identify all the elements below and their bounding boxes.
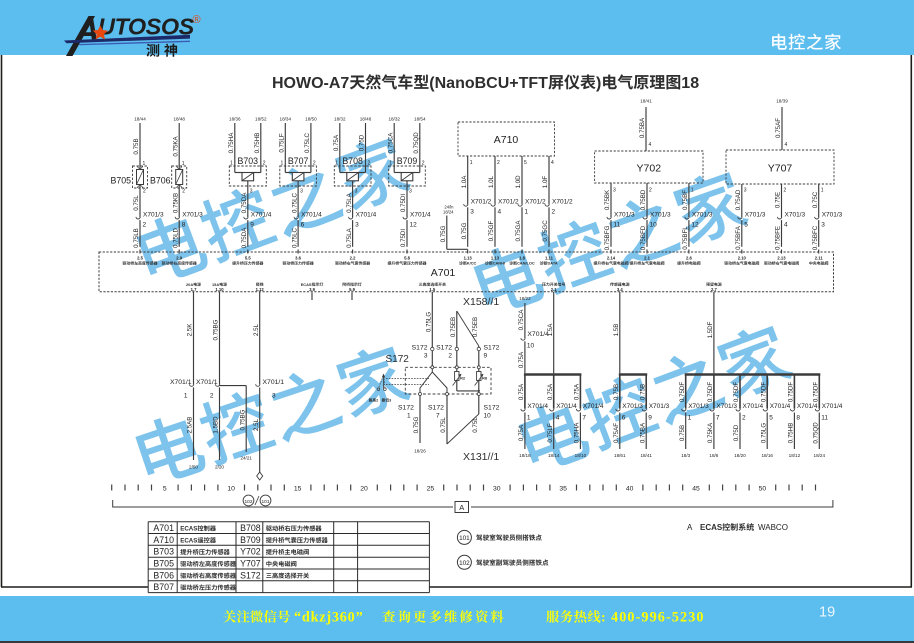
svg-text:1: 1 — [527, 415, 531, 422]
svg-text:A701: A701 — [153, 523, 174, 533]
svg-text:400-996-5230: 400-996-5230 — [611, 610, 705, 626]
svg-text:R8: R8 — [482, 376, 488, 381]
svg-text:2: 2 — [143, 189, 146, 195]
svg-text::: : — [601, 611, 606, 626]
svg-text:4: 4 — [784, 222, 788, 229]
svg-text:18/14: 18/14 — [548, 453, 560, 458]
svg-text:X701/3: X701/3 — [745, 212, 766, 219]
svg-text:5: 5 — [163, 486, 167, 493]
svg-text:0.75A: 0.75A — [518, 424, 525, 441]
svg-text:18/26: 18/26 — [414, 449, 426, 454]
svg-text:0.75BA: 0.75BA — [639, 117, 646, 138]
svg-text:B706: B706 — [150, 176, 171, 186]
svg-text:18/32: 18/32 — [388, 117, 400, 122]
svg-text:1.12: 1.12 — [256, 287, 265, 292]
svg-text:ECAS: ECAS — [180, 537, 197, 544]
svg-text:1.0F: 1.0F — [542, 176, 549, 189]
svg-text:0.75LD: 0.75LD — [172, 227, 179, 247]
svg-text:X701/4: X701/4 — [356, 212, 377, 219]
svg-text:0.75B: 0.75B — [639, 384, 646, 400]
svg-text:®: ® — [193, 14, 201, 26]
svg-text:0.75L: 0.75L — [472, 417, 479, 433]
svg-text:B708: B708 — [240, 523, 261, 533]
svg-text:2: 2 — [313, 161, 316, 167]
svg-text:0.75DF: 0.75DF — [733, 382, 740, 403]
svg-text:0.75HB: 0.75HB — [254, 133, 261, 154]
svg-text:30: 30 — [493, 486, 501, 493]
svg-text:0.75BFG: 0.75BFG — [604, 225, 611, 250]
svg-text:18/39: 18/39 — [776, 99, 788, 104]
svg-text:0.75G: 0.75G — [440, 225, 447, 242]
svg-text:2/50: 2/50 — [189, 465, 198, 470]
svg-text:B705: B705 — [153, 559, 174, 569]
svg-text:18/24: 18/24 — [443, 210, 454, 215]
svg-text:0.75B: 0.75B — [133, 138, 140, 154]
svg-text:2.1: 2.1 — [551, 287, 557, 292]
svg-text:0.75LC: 0.75LC — [291, 227, 298, 247]
svg-text:1: 1 — [230, 161, 233, 167]
svg-text:3: 3 — [409, 189, 412, 195]
svg-text:3.9: 3.9 — [309, 287, 315, 292]
svg-text:5: 5 — [744, 222, 748, 229]
svg-text:7: 7 — [716, 415, 720, 422]
svg-text:X701/3: X701/3 — [822, 212, 843, 219]
svg-text:1: 1 — [389, 161, 392, 167]
svg-text:X701/4: X701/4 — [410, 212, 431, 219]
svg-text:X701/3: X701/3 — [143, 212, 164, 219]
svg-text:0.75QD: 0.75QD — [413, 132, 420, 154]
svg-text:2.5L: 2.5L — [253, 323, 260, 336]
svg-text:3: 3 — [389, 399, 391, 403]
svg-text:1.11: 1.11 — [545, 255, 554, 260]
svg-text:X131//1: X131//1 — [463, 451, 499, 463]
svg-text:Y707: Y707 — [768, 163, 793, 175]
svg-text:0.75GA: 0.75GA — [515, 220, 522, 242]
svg-text:5: 5 — [769, 415, 773, 422]
svg-text:18/41: 18/41 — [640, 453, 652, 458]
svg-text:0.75DF: 0.75DF — [760, 382, 767, 403]
svg-text:1: 1 — [525, 209, 529, 216]
svg-text:WABCO: WABCO — [758, 523, 788, 532]
svg-text:0.75LG: 0.75LG — [426, 312, 433, 332]
svg-text:0.75CA: 0.75CA — [387, 132, 394, 154]
svg-text:1: 1 — [470, 160, 473, 166]
svg-text:(NanoBCU+TFT: (NanoBCU+TFT — [429, 75, 548, 92]
svg-text:X701/3: X701/3 — [688, 403, 709, 410]
svg-text:X701/3: X701/3 — [182, 212, 203, 219]
svg-text:18: 18 — [681, 75, 699, 92]
svg-text:B706: B706 — [153, 570, 174, 580]
svg-text:4: 4 — [649, 142, 652, 148]
svg-text:0.75BG: 0.75BG — [239, 409, 246, 430]
svg-text:0.75AF: 0.75AF — [775, 118, 782, 138]
svg-text:0.75HA: 0.75HA — [574, 422, 581, 444]
svg-text:2/20: 2/20 — [215, 465, 224, 470]
svg-text:A710: A710 — [153, 535, 174, 545]
svg-text:50: 50 — [759, 486, 767, 493]
svg-text:0.75BK: 0.75BK — [604, 189, 611, 210]
svg-text:1: 1 — [281, 161, 284, 167]
svg-text:0.75G: 0.75G — [413, 416, 420, 433]
svg-text:S172: S172 — [398, 405, 414, 412]
svg-text:1.10: 1.10 — [215, 287, 224, 292]
svg-text:S172: S172 — [428, 405, 444, 412]
svg-text:5.9: 5.9 — [349, 287, 355, 292]
svg-text:1: 1 — [182, 161, 185, 167]
svg-text:0.75DI: 0.75DI — [400, 229, 407, 248]
svg-text:0.75A: 0.75A — [333, 134, 340, 151]
svg-text:2.2: 2.2 — [350, 255, 356, 260]
svg-text:B705: B705 — [110, 176, 131, 186]
svg-text:35: 35 — [559, 486, 567, 493]
svg-text:K/CC: K/CC — [467, 261, 477, 266]
svg-text:11: 11 — [614, 222, 621, 229]
svg-text:X701/4: X701/4 — [822, 403, 843, 410]
svg-text:X158//1: X158//1 — [463, 296, 499, 308]
svg-text:40: 40 — [626, 486, 634, 493]
svg-text:A710: A710 — [494, 134, 519, 146]
svg-text:15: 15 — [294, 486, 302, 493]
svg-text:2: 2 — [368, 161, 371, 167]
svg-text:0.75DI: 0.75DI — [400, 194, 407, 213]
svg-text:2: 2 — [210, 393, 214, 400]
svg-text:0.75A: 0.75A — [574, 383, 581, 400]
svg-text:2.7: 2.7 — [711, 287, 717, 292]
svg-text:0.75L: 0.75L — [133, 195, 140, 211]
svg-text:Y702: Y702 — [240, 547, 261, 557]
svg-text:2.5K: 2.5K — [187, 323, 194, 337]
svg-text:102: 102 — [459, 560, 470, 567]
svg-text:18/6: 18/6 — [709, 453, 718, 458]
svg-text:B703: B703 — [153, 547, 174, 557]
svg-text:0.75BFE: 0.75BFE — [775, 226, 782, 250]
svg-text:3: 3 — [424, 353, 428, 360]
svg-text:18/61: 18/61 — [614, 453, 626, 458]
svg-text:A: A — [687, 523, 693, 532]
svg-text:3: 3 — [272, 393, 276, 400]
svg-text:12: 12 — [691, 222, 699, 229]
svg-text:4: 4 — [551, 160, 554, 166]
svg-text:1.0D: 1.0D — [515, 175, 522, 189]
svg-text:25: 25 — [427, 486, 435, 493]
svg-text:1.0A: 1.0A — [461, 175, 468, 189]
svg-text:1: 1 — [335, 161, 338, 167]
svg-text:0.75D: 0.75D — [359, 134, 366, 151]
svg-text:0.75BFC: 0.75BFC — [812, 225, 819, 250]
svg-text:S172: S172 — [436, 345, 452, 352]
svg-text:1: 1 — [821, 188, 824, 194]
svg-text:1.8: 1.8 — [519, 255, 525, 260]
svg-text:2: 2 — [497, 160, 500, 166]
svg-text:0.75GF: 0.75GF — [488, 220, 495, 241]
svg-text:B708: B708 — [342, 156, 363, 166]
svg-text:CAN/LOC: CAN/LOC — [517, 261, 535, 266]
svg-text:6: 6 — [301, 222, 305, 229]
svg-text:0.75BG: 0.75BG — [213, 319, 220, 340]
svg-text:2.5: 2.5 — [137, 255, 143, 260]
svg-text:0.75LF: 0.75LF — [547, 423, 554, 442]
svg-text:A701: A701 — [431, 267, 456, 279]
svg-text:6: 6 — [622, 415, 626, 422]
svg-text:DATA: DATA — [548, 261, 558, 266]
svg-text:18/24: 18/24 — [814, 453, 826, 458]
svg-text:18/50: 18/50 — [305, 117, 317, 122]
svg-text:0.75KA: 0.75KA — [172, 135, 179, 156]
svg-text:B707: B707 — [153, 582, 174, 592]
svg-text:S172: S172 — [484, 405, 500, 412]
svg-text:5.5: 5.5 — [245, 255, 251, 260]
svg-text:X701/4: X701/4 — [527, 403, 548, 410]
svg-text:1.13: 1.13 — [464, 255, 473, 260]
svg-text:“dkzj360”: “dkzj360” — [294, 610, 363, 626]
svg-text:X701/3: X701/3 — [614, 212, 635, 219]
svg-text:0.75EB: 0.75EB — [472, 317, 479, 337]
svg-text:3: 3 — [821, 222, 825, 229]
svg-text:5.8: 5.8 — [404, 255, 410, 260]
svg-text:2.6: 2.6 — [686, 255, 692, 260]
svg-text:HOWO-A7: HOWO-A7 — [272, 75, 349, 92]
svg-text:X701/2: X701/2 — [498, 199, 519, 206]
svg-text:0.75BFA: 0.75BFA — [735, 225, 742, 250]
svg-text:0.75L: 0.75L — [440, 417, 447, 433]
svg-text:2: 2 — [552, 209, 556, 216]
svg-text:2.5AB: 2.5AB — [187, 417, 194, 434]
svg-text:18/32: 18/32 — [334, 117, 346, 122]
svg-text:2: 2 — [263, 161, 266, 167]
svg-text:9: 9 — [484, 353, 488, 360]
svg-text:CANHI: CANHI — [493, 261, 505, 266]
svg-text:8: 8 — [182, 222, 186, 229]
svg-text:0.75DA: 0.75DA — [241, 227, 248, 249]
svg-text:0.75BFD: 0.75BFD — [640, 225, 647, 250]
svg-text:2.5L: 2.5L — [253, 418, 260, 431]
svg-text:1.5A: 1.5A — [547, 323, 554, 337]
svg-text:18/22: 18/22 — [519, 296, 531, 301]
svg-text:X701/4: X701/4 — [583, 403, 604, 410]
svg-text:0.75HA: 0.75HA — [228, 132, 235, 154]
svg-text:2: 2 — [742, 415, 746, 422]
svg-text:45: 45 — [692, 486, 700, 493]
svg-text:0.75B: 0.75B — [679, 425, 686, 441]
svg-text:1: 1 — [407, 413, 411, 420]
svg-text:0.75GC: 0.75GC — [542, 220, 549, 242]
svg-text:11: 11 — [821, 415, 828, 422]
svg-text:2: 2 — [784, 188, 787, 194]
svg-text:X701/4: X701/4 — [301, 212, 322, 219]
svg-text:2: 2 — [376, 399, 378, 403]
svg-text:1: 1 — [691, 188, 694, 194]
svg-text:18/41: 18/41 — [640, 99, 652, 104]
svg-text:10: 10 — [650, 222, 658, 229]
svg-text:18/54: 18/54 — [414, 117, 426, 122]
svg-text:3: 3 — [613, 188, 616, 194]
svg-text:1.5B: 1.5B — [613, 324, 620, 337]
svg-text:0.75HB: 0.75HB — [788, 423, 795, 444]
svg-text:20: 20 — [360, 486, 368, 493]
svg-text:0.75LA: 0.75LA — [346, 192, 353, 212]
svg-text:3: 3 — [744, 188, 747, 194]
svg-text:18/12: 18/12 — [789, 453, 801, 458]
svg-text:0.75AF: 0.75AF — [613, 423, 620, 443]
svg-text:18/46: 18/46 — [360, 117, 372, 122]
svg-text:102: 102 — [244, 499, 252, 505]
svg-text:0.75DF: 0.75DF — [679, 382, 686, 403]
svg-text:B703: B703 — [238, 156, 259, 166]
svg-text:1.5DF: 1.5DF — [707, 321, 714, 338]
svg-text:0.75LG: 0.75LG — [760, 423, 767, 443]
svg-text:X701/3: X701/3 — [692, 212, 713, 219]
svg-text:101: 101 — [261, 499, 269, 505]
svg-text:0.75QD: 0.75QD — [813, 422, 820, 444]
svg-text:0.75LC: 0.75LC — [304, 132, 311, 152]
svg-text:4: 4 — [785, 142, 788, 148]
svg-text:B707: B707 — [288, 156, 309, 166]
svg-text:0.75B: 0.75B — [613, 384, 620, 400]
svg-text:0.75KA: 0.75KA — [707, 422, 714, 443]
svg-text:0.75CA: 0.75CA — [518, 309, 525, 331]
svg-text:1.7: 1.7 — [191, 287, 197, 292]
svg-text:2.14: 2.14 — [607, 255, 616, 260]
svg-text:0.75E: 0.75E — [775, 192, 782, 208]
svg-text:9: 9 — [648, 415, 652, 422]
svg-text:5: 5 — [524, 160, 527, 166]
svg-text:3: 3 — [355, 189, 358, 195]
svg-text:0.75G: 0.75G — [461, 222, 468, 239]
svg-text:18/36: 18/36 — [229, 117, 241, 122]
svg-text:18/48: 18/48 — [173, 117, 185, 122]
svg-text:3: 3 — [355, 222, 359, 229]
svg-text:X701/3: X701/3 — [650, 212, 671, 219]
svg-text:ECAS: ECAS — [180, 526, 197, 533]
svg-text:10: 10 — [484, 413, 492, 420]
svg-text:3: 3 — [250, 189, 253, 195]
svg-text:S172: S172 — [484, 345, 500, 352]
svg-text:X701/1: X701/1 — [263, 379, 285, 386]
svg-text:X701/3: X701/3 — [716, 403, 737, 410]
svg-text:0.75BA: 0.75BA — [639, 422, 646, 443]
svg-text:X701/4: X701/4 — [556, 403, 577, 410]
svg-text:1: 1 — [688, 415, 692, 422]
svg-text:S172: S172 — [386, 354, 410, 365]
svg-text:2.10: 2.10 — [738, 255, 747, 260]
svg-text:0.75C: 0.75C — [812, 191, 819, 208]
svg-text:2.13: 2.13 — [777, 255, 786, 260]
svg-text:3: 3 — [300, 189, 303, 195]
svg-text:2: 2 — [422, 161, 425, 167]
svg-text:2: 2 — [182, 189, 185, 195]
svg-text:12: 12 — [410, 222, 418, 229]
svg-text:0.75LB: 0.75LB — [133, 228, 140, 248]
svg-text:3.6: 3.6 — [295, 255, 301, 260]
svg-text:0.75AD: 0.75AD — [735, 189, 742, 210]
svg-text:2: 2 — [143, 222, 147, 229]
svg-text:ECAS: ECAS — [700, 523, 723, 532]
svg-text:X701/4: X701/4 — [527, 331, 549, 338]
svg-text:0.75A: 0.75A — [518, 383, 525, 400]
svg-text:0.75LF: 0.75LF — [279, 133, 286, 152]
svg-text:18/52: 18/52 — [255, 117, 267, 122]
svg-text:A: A — [459, 503, 464, 512]
svg-text:0.75KB: 0.75KB — [172, 193, 179, 213]
svg-text:Y707: Y707 — [240, 559, 261, 569]
svg-text:Y702: Y702 — [637, 163, 662, 175]
svg-text:18/34: 18/34 — [280, 117, 292, 122]
svg-text:R2: R2 — [460, 376, 466, 381]
svg-text:18/10: 18/10 — [575, 453, 587, 458]
svg-text:S172: S172 — [412, 345, 428, 352]
svg-text:X701/3: X701/3 — [649, 403, 670, 410]
svg-text:1.5: 1.5 — [429, 287, 435, 292]
svg-text:B709: B709 — [397, 156, 418, 166]
svg-text:X701/1: X701/1 — [196, 379, 218, 386]
svg-text:8: 8 — [796, 415, 800, 422]
svg-text:1.13: 1.13 — [491, 255, 500, 260]
svg-text:2: 2 — [448, 353, 452, 360]
svg-text:10: 10 — [527, 343, 535, 350]
svg-text:0.75BFL: 0.75BFL — [682, 226, 689, 250]
svg-text:X701/2: X701/2 — [525, 199, 546, 206]
svg-text:0.75D: 0.75D — [733, 424, 740, 441]
svg-text:3.4: 3.4 — [617, 287, 623, 292]
svg-text:18/20: 18/20 — [734, 453, 746, 458]
svg-text:18/44: 18/44 — [134, 117, 146, 122]
svg-text:X701/1: X701/1 — [170, 379, 192, 386]
svg-text:101: 101 — [459, 535, 470, 542]
svg-text:X701/4: X701/4 — [797, 403, 818, 410]
svg-text:X701/4: X701/4 — [743, 403, 764, 410]
svg-text:): ) — [596, 75, 601, 92]
svg-text:X701/3: X701/3 — [622, 403, 643, 410]
svg-text:0.75EB: 0.75EB — [450, 317, 457, 337]
svg-text:18/3: 18/3 — [681, 453, 690, 458]
svg-text:0.75DF: 0.75DF — [788, 382, 795, 403]
svg-text:0.75DF: 0.75DF — [707, 382, 714, 403]
svg-text:0.75LC: 0.75LC — [291, 192, 298, 212]
svg-text:2.1: 2.1 — [644, 255, 650, 260]
svg-text:B709: B709 — [240, 535, 261, 545]
svg-text:18/18: 18/18 — [519, 453, 531, 458]
svg-text:0.75A: 0.75A — [547, 383, 554, 400]
svg-text:18/16: 18/16 — [761, 453, 773, 458]
svg-text:0.75DA: 0.75DA — [241, 192, 248, 214]
svg-text:9: 9 — [250, 222, 254, 229]
svg-text:19: 19 — [819, 605, 835, 621]
svg-text:1: 1 — [143, 161, 146, 167]
svg-text:3: 3 — [470, 209, 474, 216]
svg-text:2: 2 — [649, 188, 652, 194]
svg-text:0.75DF: 0.75DF — [813, 382, 820, 403]
svg-text:X701/4: X701/4 — [251, 212, 272, 219]
svg-text:24/21: 24/21 — [240, 456, 252, 461]
svg-text:0.75A: 0.75A — [518, 351, 525, 368]
svg-text:S172: S172 — [240, 570, 261, 580]
svg-text:4: 4 — [556, 415, 560, 422]
svg-text:4: 4 — [498, 209, 502, 216]
svg-text:1.5BD: 1.5BD — [213, 416, 220, 434]
svg-text:0.75BD: 0.75BD — [640, 189, 647, 210]
svg-text:0.75BF: 0.75BF — [682, 190, 689, 210]
svg-text:1.0L: 1.0L — [488, 175, 495, 188]
svg-text:1: 1 — [184, 393, 188, 400]
svg-text:2.9: 2.9 — [176, 255, 182, 260]
svg-text:X701/2: X701/2 — [471, 199, 492, 206]
svg-text:10: 10 — [227, 486, 235, 493]
svg-text:X701/3: X701/3 — [785, 212, 806, 219]
svg-text:X701/4: X701/4 — [770, 403, 791, 410]
svg-text:2.11: 2.11 — [815, 255, 824, 260]
svg-text:7: 7 — [582, 415, 586, 422]
svg-text:0.75LA: 0.75LA — [346, 227, 353, 247]
